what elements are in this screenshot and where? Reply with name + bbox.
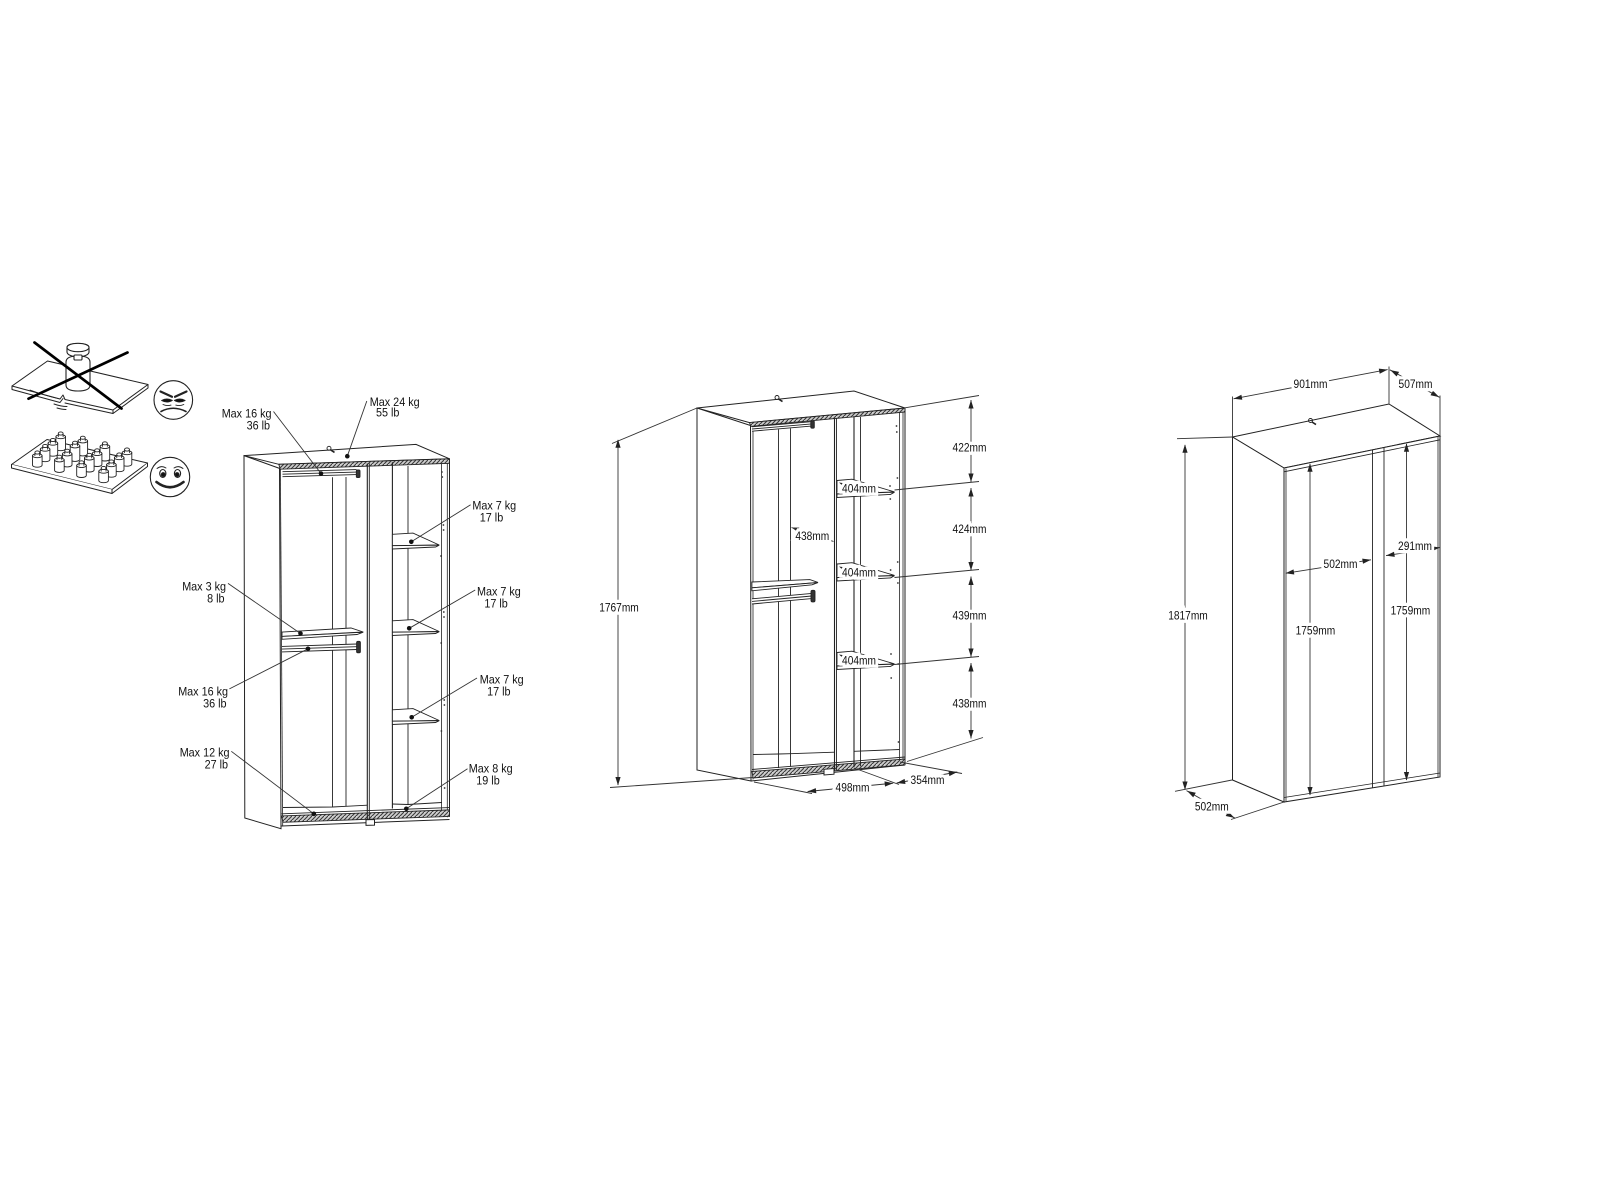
svg-text:1817mm: 1817mm: [1168, 611, 1208, 623]
svg-text:438mm: 438mm: [953, 699, 987, 711]
svg-text:1759mm: 1759mm: [1391, 606, 1431, 618]
svg-text:404mm: 404mm: [842, 483, 876, 495]
svg-text:422mm: 422mm: [953, 443, 987, 455]
svg-text:27 lb: 27 lb: [205, 757, 229, 771]
svg-text:502mm: 502mm: [1324, 559, 1358, 571]
svg-text:498mm: 498mm: [836, 783, 870, 795]
svg-text:17 lb: 17 lb: [480, 511, 504, 525]
svg-text:901mm: 901mm: [1294, 379, 1328, 391]
svg-text:1767mm: 1767mm: [599, 603, 639, 615]
svg-text:438mm: 438mm: [795, 531, 829, 543]
svg-text:36 lb: 36 lb: [203, 697, 227, 711]
svg-text:8 lb: 8 lb: [207, 592, 225, 606]
svg-text:354mm: 354mm: [911, 775, 945, 787]
svg-text:36 lb: 36 lb: [247, 419, 271, 433]
svg-text:404mm: 404mm: [842, 567, 876, 579]
svg-text:17 lb: 17 lb: [487, 685, 511, 699]
svg-text:424mm: 424mm: [953, 524, 987, 536]
svg-text:17 lb: 17 lb: [484, 597, 508, 611]
svg-text:1759mm: 1759mm: [1296, 625, 1336, 637]
svg-text:507mm: 507mm: [1399, 379, 1433, 391]
svg-text:404mm: 404mm: [842, 655, 876, 667]
svg-text:291mm: 291mm: [1398, 541, 1432, 553]
svg-text:55 lb: 55 lb: [376, 406, 400, 420]
svg-text:439mm: 439mm: [953, 611, 987, 623]
svg-text:502mm: 502mm: [1195, 802, 1229, 814]
svg-text:19 lb: 19 lb: [476, 774, 500, 788]
